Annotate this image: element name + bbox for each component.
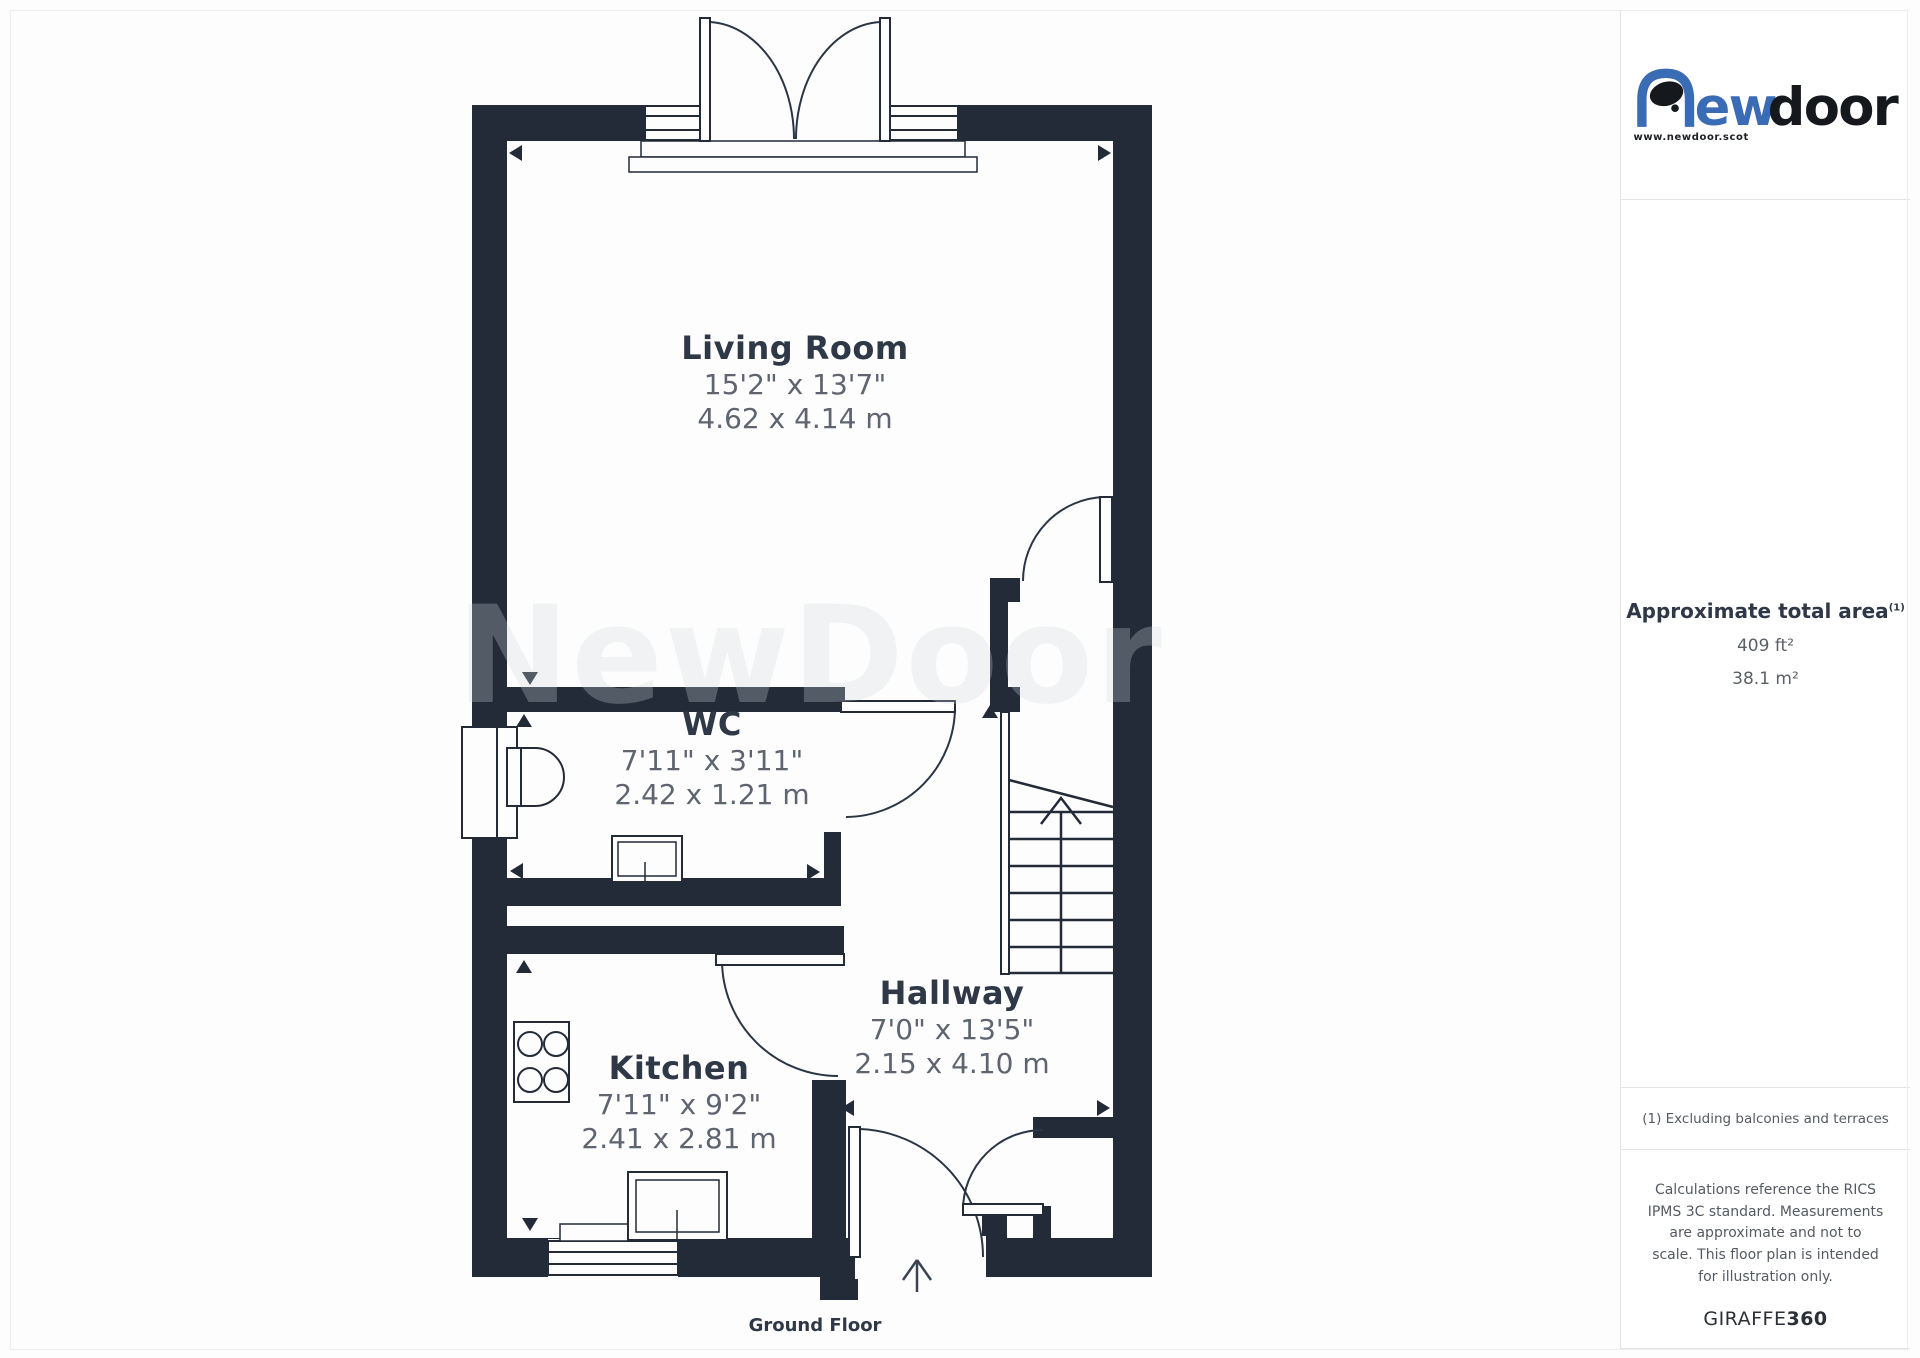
- window-top-left: [645, 106, 702, 140]
- stairs-railing: [1001, 712, 1009, 974]
- room-dim-metric: 2.41 x 2.81 m: [581, 1122, 776, 1156]
- footnote-section: (1) Excluding balconies and terraces: [1621, 1087, 1910, 1149]
- total-area-title: Approximate total area(1): [1626, 599, 1905, 623]
- french-door-leaf-left: [700, 18, 710, 141]
- total-area-title-text: Approximate total area: [1626, 599, 1889, 623]
- total-area-footnote-ref: (1): [1889, 602, 1905, 613]
- door-front-leaf: [849, 1127, 860, 1257]
- wall-kitchen-north: [472, 926, 844, 954]
- wall-frontdoor-jamb-left: [820, 1277, 858, 1300]
- door-knob-icon: [1671, 104, 1679, 112]
- floor-caption: Ground Floor: [749, 1315, 882, 1336]
- room-label-wc: WC 7'11" x 3'11" 2.42 x 1.21 m: [614, 704, 809, 812]
- room-dim-imperial: 7'11" x 3'11": [614, 744, 809, 778]
- stairs: [1001, 712, 1113, 974]
- watermark-text: NewDoor: [456, 577, 1163, 734]
- opening-front-door: [855, 1236, 986, 1279]
- kitchen-sink: [628, 1172, 727, 1240]
- floor-plan-page: NewDoor Living Room 15'2" x 13'7" 4.62 x…: [0, 0, 1920, 1358]
- door-cupboard-leaf: [963, 1204, 1043, 1215]
- wc-basin: [507, 748, 564, 806]
- room-title: Living Room: [681, 328, 908, 368]
- room-dim-imperial: 7'11" x 9'2": [581, 1088, 776, 1122]
- wc-toilet: [612, 836, 682, 882]
- entry-steps: [629, 141, 977, 172]
- logo-text-black: door: [1767, 77, 1898, 134]
- room-title: WC: [614, 704, 809, 744]
- info-sidebar: ew door www.newdoor.scot Approximate tot…: [1620, 10, 1910, 1350]
- provider-brand: GIRAFFE360: [1647, 1308, 1884, 1330]
- room-label-kitchen: Kitchen 7'11" x 9'2" 2.41 x 2.81 m: [581, 1048, 776, 1156]
- wall-wc-east: [824, 832, 841, 906]
- room-title: Hallway: [854, 973, 1049, 1013]
- disclaimer-section: Calculations reference the RICS IPMS 3C …: [1621, 1149, 1910, 1349]
- room-label-hallway: Hallway 7'0" x 13'5" 2.15 x 4.10 m: [854, 973, 1049, 1081]
- room-dim-imperial: 15'2" x 13'7": [681, 368, 908, 402]
- window-top-right: [890, 106, 958, 140]
- french-door-leaf-right: [880, 18, 890, 141]
- logo-website: www.newdoor.scot: [1634, 132, 1749, 143]
- logo-section: ew door www.newdoor.scot: [1621, 10, 1910, 200]
- disclaimer-text: Calculations reference the RICS IPMS 3C …: [1647, 1180, 1884, 1288]
- door-livingroom-leaf: [1100, 497, 1112, 582]
- kitchen-hob: [514, 1022, 569, 1102]
- wall-cupboard-stub: [1033, 1117, 1113, 1138]
- total-area-section: Approximate total area(1) 409 ft² 38.1 m…: [1621, 200, 1910, 1087]
- footnote-text: (1) Excluding balconies and terraces: [1642, 1111, 1889, 1127]
- door-kitchen-leaf: [716, 954, 844, 965]
- room-dim-imperial: 7'0" x 13'5": [854, 1013, 1049, 1047]
- logo-text-blue: ew: [1694, 77, 1775, 134]
- wall-kitchen-east: [812, 1080, 846, 1238]
- window-kitchen: [548, 1241, 678, 1275]
- newdoor-logo-icon: ew door: [1630, 62, 1902, 134]
- total-area-metric: 38.1 m²: [1732, 669, 1799, 689]
- room-dim-metric: 4.62 x 4.14 m: [681, 402, 908, 436]
- room-dim-metric: 2.15 x 4.10 m: [854, 1047, 1049, 1081]
- opening-french-door: [700, 103, 890, 143]
- room-label-living-room: Living Room 15'2" x 13'7" 4.62 x 4.14 m: [681, 328, 908, 436]
- wall-frontdoor-jamb-right: [982, 1215, 1007, 1238]
- room-dim-metric: 2.42 x 1.21 m: [614, 778, 809, 812]
- total-area-imperial: 409 ft²: [1737, 636, 1794, 656]
- newdoor-logo: ew door www.newdoor.scot: [1630, 62, 1902, 148]
- room-title: Kitchen: [581, 1048, 776, 1088]
- provider-suffix: 360: [1786, 1308, 1827, 1330]
- provider-name: GIRAFFE: [1703, 1308, 1786, 1330]
